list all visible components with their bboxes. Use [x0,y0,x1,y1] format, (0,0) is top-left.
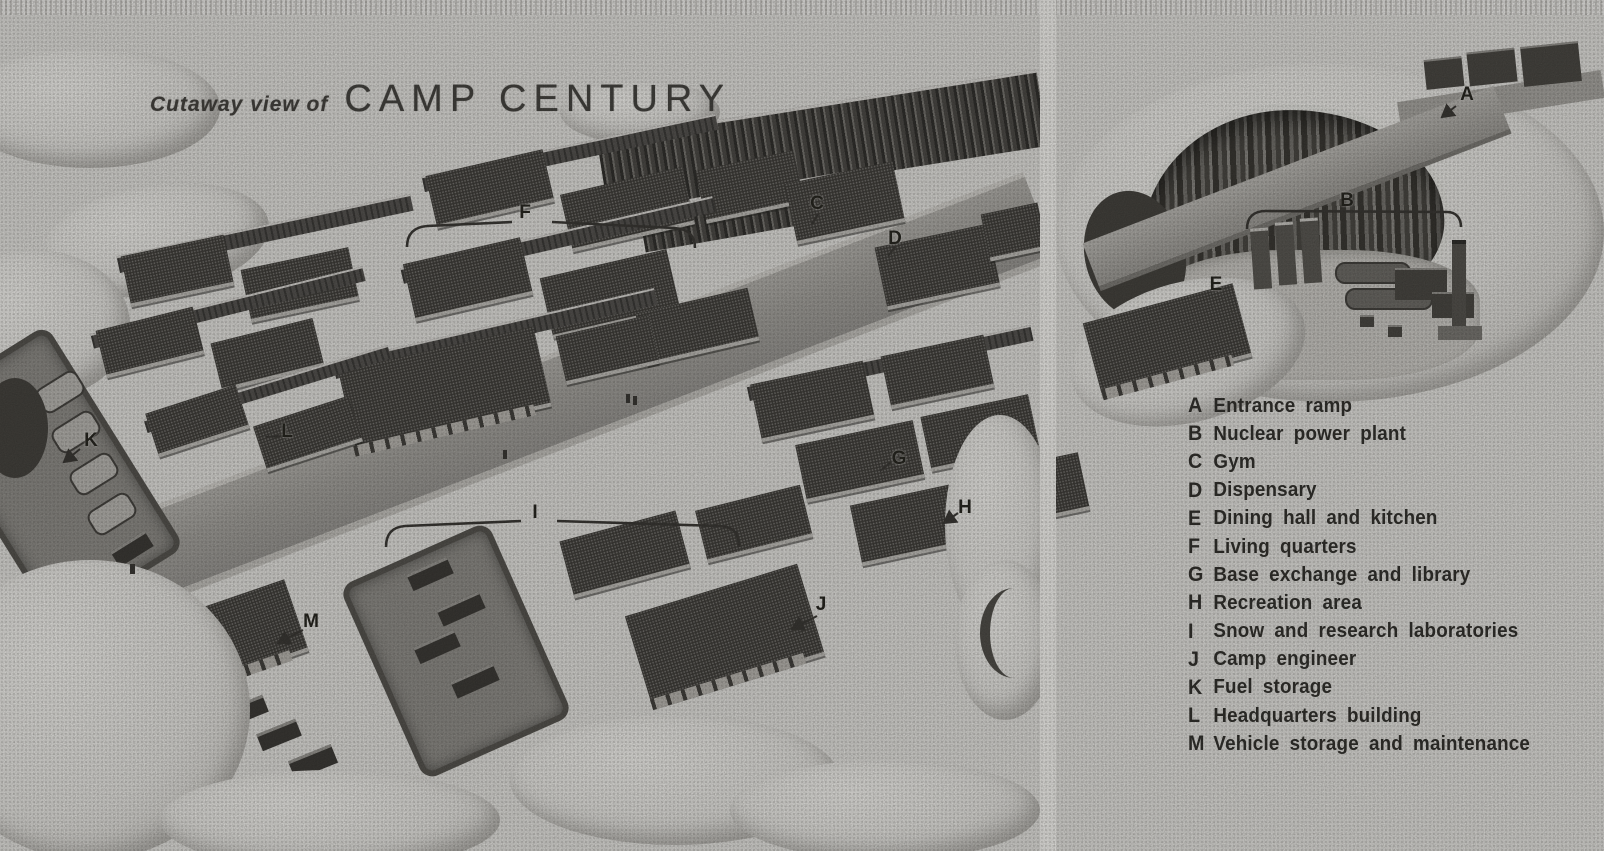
panel-divider [1040,0,1056,851]
surface-building [1520,41,1582,87]
legend-item: GBase exchange and library [1188,561,1573,589]
legend-item: EDining hall and kitchen [1188,505,1573,533]
page-top-edge [0,0,1604,15]
legend-letter: E [1188,507,1213,531]
legend-item: JCamp engineer [1188,646,1573,674]
legend-item: DDispensary [1188,477,1573,505]
marker-D-dispensary: D [884,228,906,250]
legend-item: LHeadquarters building [1188,702,1573,730]
legend-label: Entrance ramp [1213,395,1352,418]
marker-G-base-exchange: G [888,448,910,470]
building-roof-laboratory [559,510,690,598]
legend-item: HRecreation area [1188,589,1573,617]
figure-title: Cutaway view of CAMP CENTURY [150,78,731,121]
legend-letter: D [1188,479,1213,503]
title-main: CAMP CENTURY [344,78,731,121]
legend-item: FLiving quarters [1188,533,1573,561]
surface-building [1466,48,1517,87]
building-roof [750,361,875,443]
marker-L-headquarters: L [276,421,298,443]
legend-letter: K [1188,676,1213,700]
legend-letter: C [1188,450,1213,474]
legend-label: Dispensary [1213,479,1316,502]
legend-label: Base exchange and library [1213,564,1470,587]
marker-H-recreation: H [954,497,976,519]
snow-mound [730,760,1040,851]
legend: AEntrance ramp BNuclear power plant CGym… [1188,392,1573,758]
plant-equipment [1388,325,1402,337]
research-trench [339,521,573,781]
marker-I-laboratories: I [524,502,546,524]
building-roof-living-quarters [403,237,533,321]
building-roof-laboratory [695,485,813,564]
legend-label: Living quarters [1213,536,1356,559]
marker-M-vehicle-storage: M [300,611,322,633]
legend-item: BNuclear power plant [1188,420,1573,448]
legend-item: CGym [1188,448,1573,476]
camp-century-cutaway-illustration: Cutaway view of CAMP CENTURY F C D K L G… [0,0,1604,851]
legend-letter: J [1188,648,1213,672]
marker-K-fuel-storage: K [80,430,102,452]
marker-B-nuclear-power-plant: B [1336,190,1358,212]
legend-label: Vehicle storage and maintenance [1213,733,1530,756]
legend-letter: A [1188,394,1213,418]
marker-F-living-quarters: F [514,202,536,224]
legend-label: Nuclear power plant [1213,423,1406,446]
building-roof [145,384,250,457]
marker-E-dining-hall: E [1205,274,1227,296]
plant-equipment [1360,315,1374,327]
legend-label: Snow and research laboratories [1213,620,1518,643]
stack-base [1438,326,1482,340]
legend-letter: B [1188,422,1213,446]
legend-letter: I [1188,620,1213,644]
trench-mouth-arc [980,588,1048,678]
legend-label: Fuel storage [1213,676,1332,699]
marker-A-entrance-ramp: A [1456,84,1478,106]
marker-J-camp-engineer: J [810,594,832,616]
legend-letter: L [1188,704,1213,728]
legend-item: ISnow and research laboratories [1188,618,1573,646]
legend-label: Recreation area [1213,592,1362,615]
legend-label: Dining hall and kitchen [1213,507,1437,530]
legend-letter: M [1188,732,1213,756]
legend-label: Camp engineer [1213,648,1356,671]
vehicle [256,719,302,751]
building-roof [881,335,995,410]
legend-letter: F [1188,535,1213,559]
legend-item: MVehicle storage and maintenance [1188,730,1573,758]
marker-C-gym: C [806,193,828,215]
legend-letter: G [1188,563,1213,587]
legend-letter: H [1188,591,1213,615]
exhaust-stack [1452,240,1466,332]
legend-label: Gym [1213,451,1255,474]
legend-item: KFuel storage [1188,674,1573,702]
legend-item: AEntrance ramp [1188,392,1573,420]
title-prefix: Cutaway view of [150,93,328,117]
legend-label: Headquarters building [1213,705,1421,728]
